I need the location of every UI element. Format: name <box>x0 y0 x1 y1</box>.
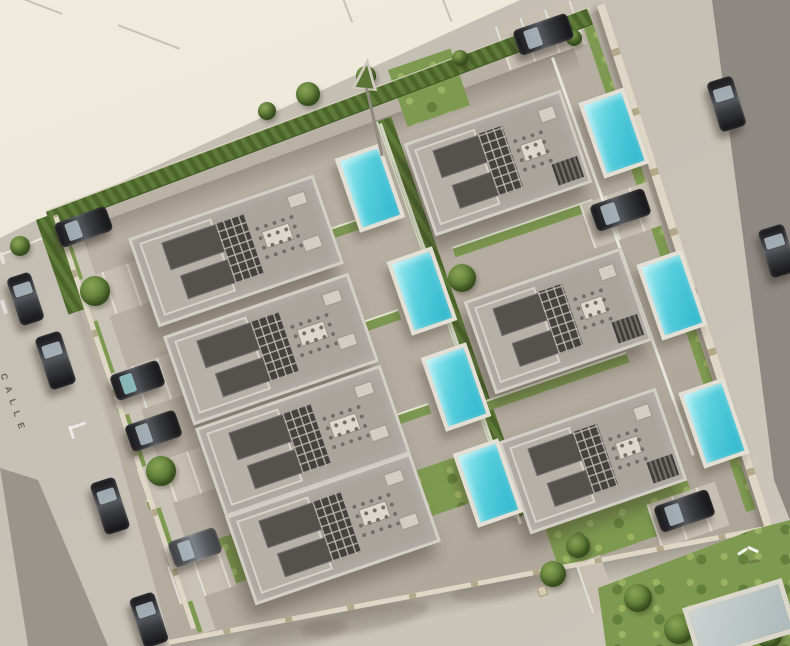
bush <box>624 584 652 612</box>
car-windshield <box>177 539 196 562</box>
bush <box>80 276 110 306</box>
parking-mark <box>70 421 86 429</box>
street-label: CALLE <box>0 372 29 437</box>
car-windshield <box>134 422 154 446</box>
bush <box>540 561 566 587</box>
bush <box>448 264 476 292</box>
car-windshield <box>600 202 621 226</box>
bush <box>10 236 30 256</box>
terrace-chairs <box>251 211 304 260</box>
aerial-render: CALLE <box>0 0 790 646</box>
terrace-chairs <box>605 424 652 473</box>
car <box>89 476 130 535</box>
sun-lounger <box>353 380 375 399</box>
bush <box>146 456 176 486</box>
car-windshield <box>64 219 84 241</box>
car-windshield <box>119 372 138 395</box>
car <box>6 271 45 326</box>
car-windshield <box>12 281 33 298</box>
terrace-chairs <box>318 401 371 450</box>
bush <box>452 50 468 66</box>
terrace-chairs <box>286 309 339 358</box>
bush <box>258 102 276 120</box>
car-windshield <box>712 85 734 103</box>
car <box>34 330 77 391</box>
car-windshield <box>135 601 157 619</box>
car-windshield <box>96 487 118 505</box>
bird-wing <box>737 547 748 555</box>
terrace-chairs <box>510 126 557 175</box>
sun-lounger <box>286 190 308 209</box>
flying-bird <box>736 544 760 558</box>
car-windshield <box>764 233 786 250</box>
sun-lounger <box>336 332 358 351</box>
car-windshield <box>664 503 685 527</box>
sun-lounger <box>597 263 617 282</box>
sun-lounger <box>368 424 390 443</box>
sun-lounger <box>398 512 420 531</box>
sun-lounger <box>632 403 652 422</box>
car-windshield <box>523 26 543 49</box>
bush <box>296 82 320 106</box>
sun-lounger <box>537 105 557 124</box>
utility-pole <box>351 57 380 92</box>
bush <box>566 534 590 558</box>
sun-lounger <box>321 288 343 307</box>
parking-mark <box>0 300 8 315</box>
bird-wing <box>747 546 759 554</box>
car-windshield <box>41 341 64 360</box>
sun-lounger <box>301 234 323 253</box>
sun-lounger <box>383 468 405 487</box>
terrace-chairs <box>570 284 617 333</box>
terrace-chairs <box>348 489 401 538</box>
